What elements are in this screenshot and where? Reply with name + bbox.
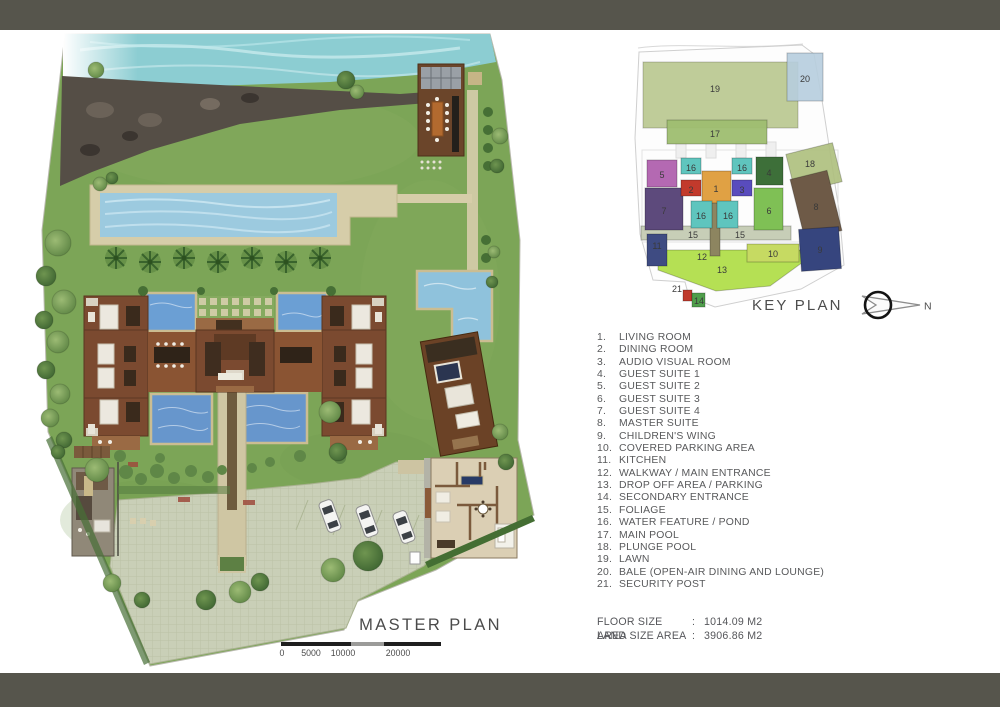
key-plan-number-label: 13 [717, 265, 727, 275]
legend-item-label: LIVING ROOM [619, 332, 897, 344]
key-plan-number-label: 20 [800, 74, 810, 84]
legend-item: 18.PLUNGE POOL [597, 542, 897, 554]
legend-item-number: 11. [597, 455, 619, 467]
legend-item-number: 2. [597, 344, 619, 356]
legend-item: 17.MAIN POOL [597, 530, 897, 542]
key-plan-number-label: 17 [710, 129, 720, 139]
legend-item-label: WALKWAY / MAIN ENTRANCE [619, 468, 897, 480]
key-plan-number-label: 8 [813, 202, 818, 212]
legend-item-label: LAWN [619, 554, 897, 566]
legend-item: 21.SECURITY POST [597, 579, 897, 591]
legend-item-number: 7. [597, 406, 619, 418]
legend: 1.LIVING ROOM2.DINING ROOM3.AUDIO VISUAL… [597, 332, 897, 591]
legend-item: 5.GUEST SUITE 2 [597, 381, 897, 393]
key-plan-number-label: 15 [688, 230, 698, 240]
legend-item-number: 10. [597, 443, 619, 455]
key-plan-number-label: 11 [652, 241, 661, 251]
land-size-row: LAND SIZE AREA : 3906.86 M2 [597, 630, 762, 644]
legend-item-label: GUEST SUITE 1 [619, 369, 897, 381]
legend-item-number: 12. [597, 468, 619, 480]
scale-bar-segment [351, 642, 384, 646]
legend-item-label: SECURITY POST [619, 579, 897, 591]
key-plan-number-label: 1 [713, 184, 718, 194]
legend-item: 7.GUEST SUITE 4 [597, 406, 897, 418]
key-plan-number-label: 16 [723, 211, 733, 221]
legend-item: 9.CHILDREN'S WING [597, 431, 897, 443]
scale-label: 0 [280, 648, 285, 658]
legend-item: 2.DINING ROOM [597, 344, 897, 356]
legend-item: 14.SECONDARY ENTRANCE [597, 492, 897, 504]
master-plan-title: MASTER PLAN [343, 616, 518, 635]
key-plan-block-21 [683, 290, 692, 301]
legend-item: 10.COVERED PARKING AREA [597, 443, 897, 455]
legend-item-label: COVERED PARKING AREA [619, 443, 897, 455]
legend-item: 8.MASTER SUITE [597, 418, 897, 430]
legend-item-label: GUEST SUITE 3 [619, 394, 897, 406]
key-plan-number-label: 5 [659, 170, 664, 180]
scale-bar-segment [281, 642, 351, 646]
key-plan-number-label: 10 [768, 249, 778, 259]
key-plan-number-label: 18 [805, 159, 815, 169]
key-plan-number-label: 19 [710, 84, 720, 94]
legend-item-label: MAIN POOL [619, 530, 897, 542]
legend-item: 19.LAWN [597, 554, 897, 566]
legend-item: 20.BALE (OPEN-AIR DINING AND LOUNGE) [597, 567, 897, 579]
legend-item-number: 14. [597, 492, 619, 504]
legend-item-number: 9. [597, 431, 619, 443]
legend-item-number: 15. [597, 505, 619, 517]
north-compass-icon: N [856, 288, 940, 322]
legend-item-label: FOLIAGE [619, 505, 897, 517]
key-plan-number-label: 14 [694, 296, 704, 306]
legend-item-label: SECONDARY ENTRANCE [619, 492, 897, 504]
legend-item: 1.LIVING ROOM [597, 332, 897, 344]
key-plan-number-label: 9 [817, 245, 822, 255]
key-plan-number-label: 2 [688, 185, 693, 195]
key-plan-number-label: 7 [661, 206, 666, 216]
legend-item-label: DINING ROOM [619, 344, 897, 356]
legend-item-label: GUEST SUITE 4 [619, 406, 897, 418]
legend-item-number: 3. [597, 357, 619, 369]
key-plan-number-label: 16 [696, 211, 706, 221]
key-plan-number-label: 16 [737, 163, 747, 173]
key-plan-number-label: 4 [766, 168, 771, 178]
legend-item-label: MASTER SUITE [619, 418, 897, 430]
legend-item: 13.DROP OFF AREA / PARKING [597, 480, 897, 492]
legend-item-label: PLUNGE POOL [619, 542, 897, 554]
central-walkway [218, 390, 246, 572]
master-plan-illustration [0, 0, 560, 707]
key-plan-number-label: 12 [697, 252, 707, 262]
legend-item-label: DROP OFF AREA / PARKING [619, 480, 897, 492]
scale-bar: 050001000020000 [281, 642, 443, 660]
key-plan-number-label: 21 [672, 284, 682, 294]
legend-item-number: 16. [597, 517, 619, 529]
legend-item-label: BALE (OPEN-AIR DINING AND LOUNGE) [619, 567, 897, 579]
key-plan-number-label: 6 [766, 206, 771, 216]
legend-item-label: WATER FEATURE / POND [619, 517, 897, 529]
legend-item: 12.WALKWAY / MAIN ENTRANCE [597, 468, 897, 480]
floor-size-row: FLOOR SIZE AREA : 1014.09 M2 [597, 616, 762, 630]
scale-label: 20000 [386, 648, 410, 658]
land-size-label: LAND SIZE AREA [597, 630, 692, 644]
legend-item: 15.FOLIAGE [597, 505, 897, 517]
legend-item-label: CHILDREN'S WING [619, 431, 897, 443]
legend-item-number: 1. [597, 332, 619, 344]
legend-item: 16.WATER FEATURE / POND [597, 517, 897, 529]
key-plan-number-label: 16 [686, 163, 696, 173]
legend-item-label: AUDIO VISUAL ROOM [619, 357, 897, 369]
legend-item-number: 6. [597, 394, 619, 406]
legend-item-label: GUEST SUITE 2 [619, 381, 897, 393]
legend-item: 11.KITCHEN [597, 455, 897, 467]
key-plan-title-row: KEY PLAN [752, 294, 843, 316]
area-totals: FLOOR SIZE AREA : 1014.09 M2 LAND SIZE A… [597, 616, 762, 643]
bale-structure [418, 64, 464, 170]
legend-item-number: 19. [597, 554, 619, 566]
legend-item-number: 5. [597, 381, 619, 393]
legend-item: 4.GUEST SUITE 1 [597, 369, 897, 381]
key-plan-diagram: 1920171815151310111221145721316161616468… [618, 38, 868, 308]
scale-bar-segment [384, 642, 441, 646]
compass-north-label: N [924, 301, 932, 313]
legend-item-number: 13. [597, 480, 619, 492]
legend-item-label: KITCHEN [619, 455, 897, 467]
floor-size-label: FLOOR SIZE AREA [597, 616, 692, 630]
page: 1920171815151310111221145721316161616468… [0, 0, 1000, 707]
key-plan-title: KEY PLAN [752, 297, 843, 314]
legend-item-number: 20. [597, 567, 619, 579]
legend-item-number: 18. [597, 542, 619, 554]
legend-item-number: 4. [597, 369, 619, 381]
legend-item-number: 21. [597, 579, 619, 591]
scale-label: 10000 [331, 648, 355, 658]
key-plan-number-label: 3 [739, 185, 744, 195]
legend-item-number: 8. [597, 418, 619, 430]
legend-item: 3.AUDIO VISUAL ROOM [597, 357, 897, 369]
scale-label: 5000 [301, 648, 321, 658]
key-plan-number-label: 15 [735, 230, 745, 240]
key-plan-block-19 [643, 62, 798, 128]
legend-item-number: 17. [597, 530, 619, 542]
floor-size-value: 1014.09 M2 [704, 616, 762, 630]
land-size-value: 3906.86 M2 [704, 630, 762, 644]
legend-item: 6.GUEST SUITE 3 [597, 394, 897, 406]
